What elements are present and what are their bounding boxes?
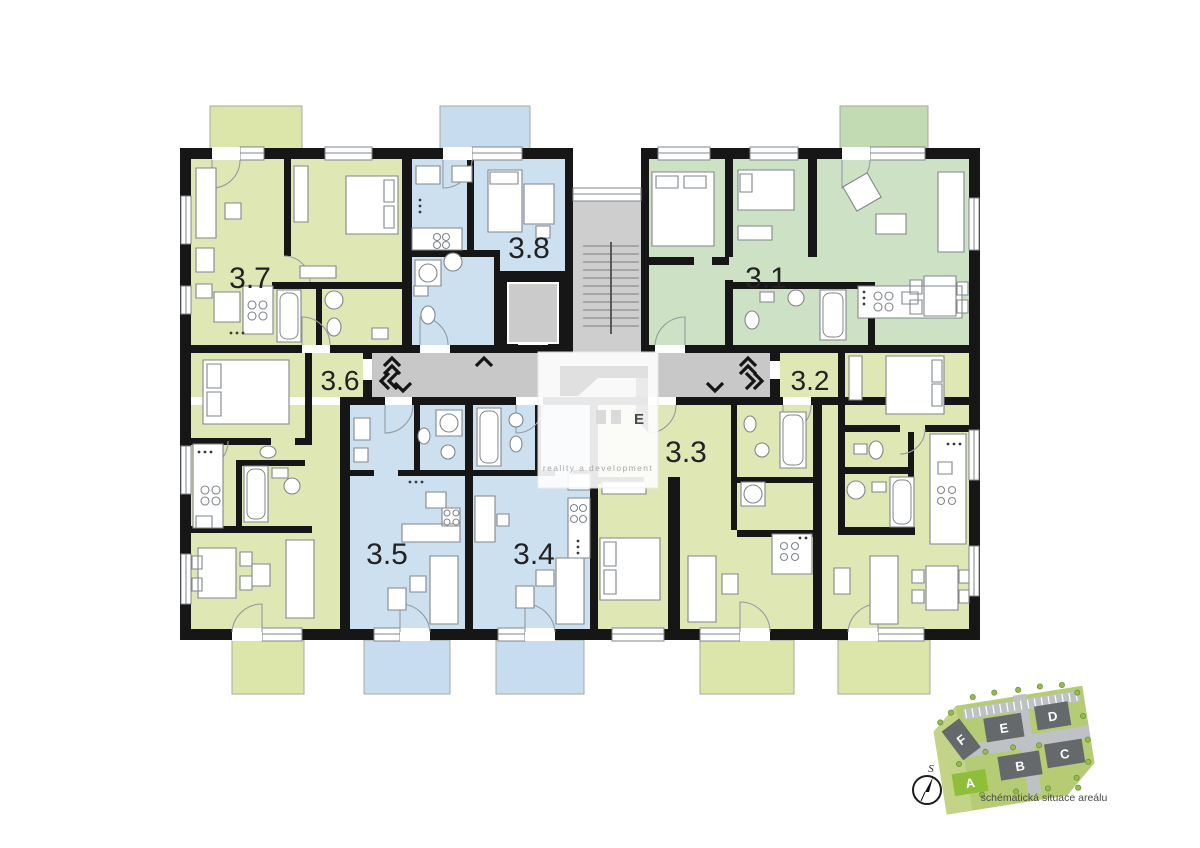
watermark-logo-letter: E — [634, 411, 644, 428]
unit-label-3-4: 3.4 — [513, 538, 555, 571]
watermark: E reality a development — [538, 352, 658, 488]
balcony — [440, 106, 530, 150]
watermark-tagline: reality a development — [543, 463, 653, 473]
watermark-ghost-letter — [611, 410, 621, 424]
floor-plan-page: 3.7 3.8 3.1 3.6 3.2 3.3 3.5 3.4 E realit… — [0, 0, 1200, 848]
compass: S — [913, 763, 941, 804]
unit-label-3-8: 3.8 — [508, 232, 550, 265]
balcony — [840, 106, 928, 150]
balcony — [210, 106, 302, 150]
site-map: F E D A B C schématická situace areálu — [929, 676, 1108, 814]
unit-label-3-5: 3.5 — [366, 538, 408, 571]
stair-recess — [565, 140, 649, 160]
floor-plan-drawing: 3.7 3.8 3.1 3.6 3.2 3.3 3.5 3.4 E realit… — [0, 0, 1200, 848]
unit-label-3-3: 3.3 — [665, 436, 707, 469]
watermark-ghost-letter — [596, 410, 606, 424]
balcony — [838, 640, 930, 694]
compass-north-label: S — [928, 763, 934, 775]
unit-label-3-7: 3.7 — [229, 262, 271, 295]
balcony — [232, 640, 304, 694]
balcony — [496, 640, 584, 694]
unit-label-3-1: 3.1 — [745, 262, 787, 295]
balcony — [364, 640, 450, 694]
site-map-caption: schématická situace areálu — [981, 792, 1108, 804]
unit-label-3-2: 3.2 — [791, 365, 830, 396]
elevator-cab — [508, 283, 558, 343]
balcony — [700, 640, 794, 694]
stairwell — [573, 201, 641, 353]
unit-label-3-6: 3.6 — [321, 365, 360, 396]
